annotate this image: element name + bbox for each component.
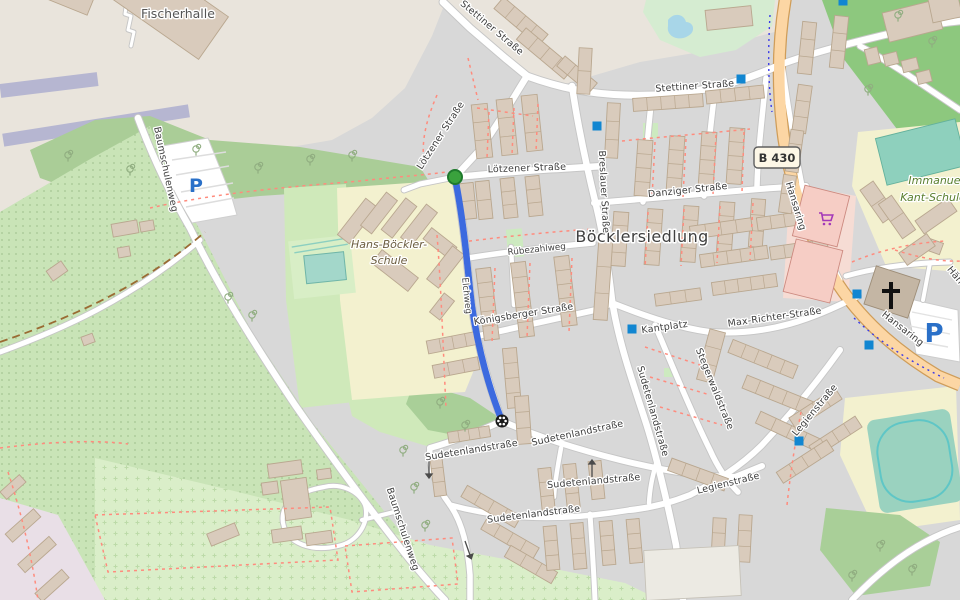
mini-roundabout-icon xyxy=(496,415,509,428)
poi-label-fischerhalle: Fischerhalle xyxy=(141,6,215,21)
parking-icon: P xyxy=(924,319,943,349)
bus-stop-icon xyxy=(853,290,862,299)
school-label-hans-boeckler-1: Hans-Böckler- xyxy=(351,238,427,251)
bus-stop-icon xyxy=(839,0,848,6)
bus-stop-icon xyxy=(737,75,746,84)
school-label-hans-boeckler-2: Schule xyxy=(371,254,408,267)
school-label-immanuel-1: Immanuel- xyxy=(908,174,960,187)
route-start-marker[interactable] xyxy=(448,170,462,184)
bus-stop-icon xyxy=(628,325,637,334)
place-label-boecklersiedlung: Böcklersiedlung xyxy=(575,227,708,246)
parking-icon: P xyxy=(189,175,203,197)
bus-stop-icon xyxy=(593,122,602,131)
road-shield-b430: B 430 xyxy=(754,147,800,168)
map-canvas[interactable]: Fischerhalle Böcklersiedlung Hans-Böckle… xyxy=(0,0,960,600)
school-label-immanuel-2: Kant-Schule xyxy=(900,191,960,204)
road-shield-text: B 430 xyxy=(759,151,796,165)
bus-stop-icon xyxy=(865,341,874,350)
